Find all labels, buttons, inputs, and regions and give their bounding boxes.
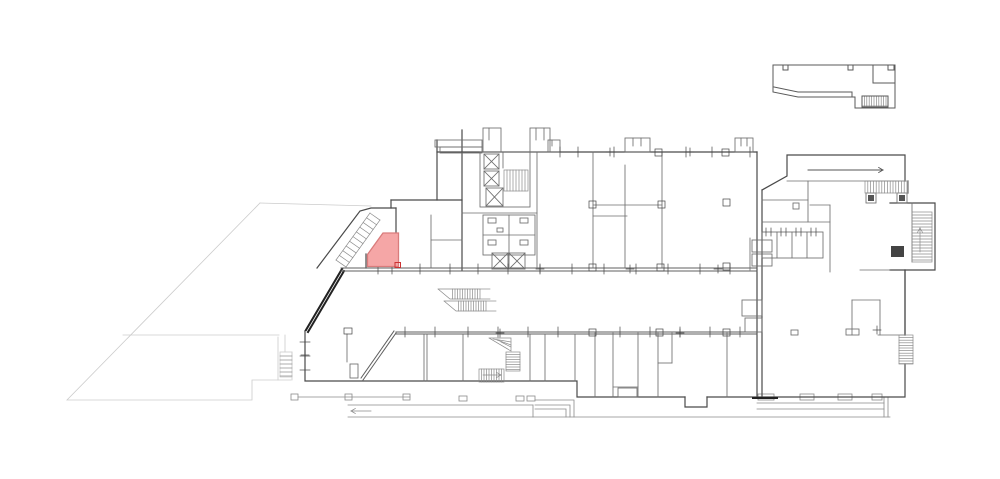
floor-plan-viewer: [0, 0, 1000, 479]
highlighted-unit[interactable]: [368, 233, 401, 268]
floor-plan-svg: [0, 0, 1000, 479]
corridor-walls: [341, 268, 757, 380]
stairs-and-escalators: [280, 96, 932, 382]
direction-arrows: [808, 168, 883, 173]
interior-partitions: [347, 128, 912, 397]
